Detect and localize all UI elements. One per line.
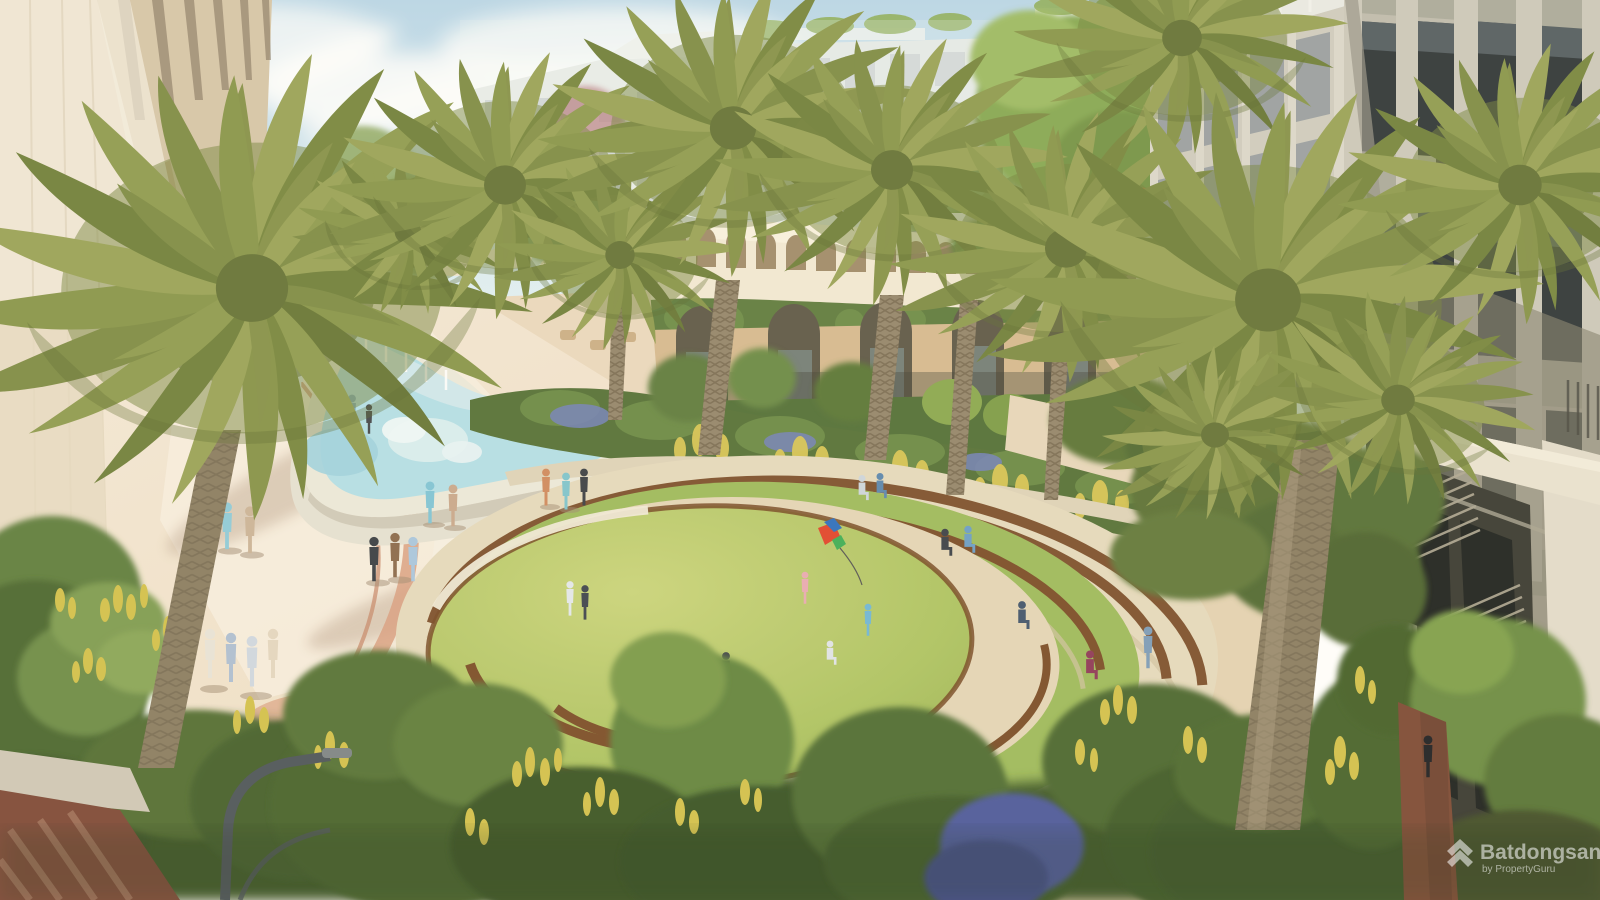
svg-text:Batdongsan: Batdongsan xyxy=(1480,841,1600,864)
svg-text:by PropertyGuru: by PropertyGuru xyxy=(1482,864,1555,875)
